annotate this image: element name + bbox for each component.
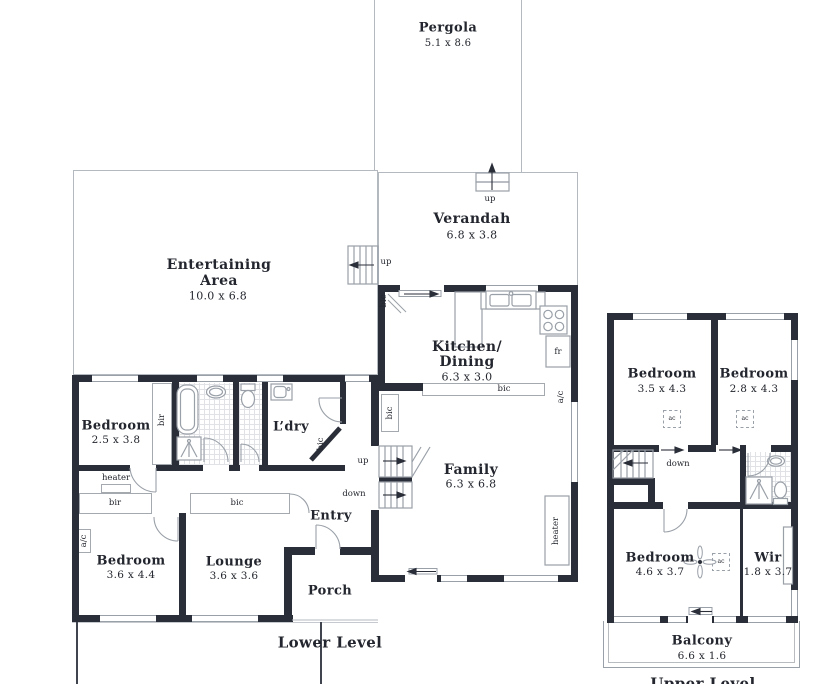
bic-label: bic [231,499,244,508]
ac-unit-label: ac [718,559,725,565]
room-label-pergola: Pergola [419,22,477,35]
room-dims-up-bedroom-right: 2.8 x 4.3 [730,384,779,395]
room-dims-bedroom-front: 2.5 x 3.8 [92,435,141,446]
room-label-laundry: L’dry [273,421,309,434]
upper-toilet-icon [774,482,788,505]
up-label: up [358,457,369,466]
room-label-verandah: Verandah [433,212,510,226]
room-label-entertaining-2: Area [200,274,238,288]
room-dims-family: 6.3 x 6.8 [446,479,497,490]
room-label-kitchen-dining: Kitchen/ [432,340,502,354]
heater-label: heater [102,474,130,483]
room-dims-balcony: 6.6 x 1.6 [678,651,727,662]
bir-label: bir [158,414,167,426]
room-dims-up-bedroom-left: 3.5 x 4.3 [638,384,687,395]
ac-unit-label: ac [669,416,676,422]
sink-icon [486,291,536,309]
toilet-icon [241,384,255,408]
room-label-entertaining: Entertaining [167,258,272,272]
level-label-lower: Lower Level [278,636,383,651]
down-label: down [666,460,689,469]
heater-label: heater [552,517,561,545]
room-label-up-bedroom-right: Bedroom [719,368,788,381]
room-dims-lounge: 3.6 x 3.6 [210,571,259,582]
bathtub-icon [177,385,198,434]
ac-label: a/c [557,391,566,404]
fixtures-overlay [0,0,828,684]
room-label-porch: Porch [308,585,352,598]
room-label-bedroom-front: Bedroom [81,420,150,433]
basin-icon [207,386,226,398]
bic-label: bic [498,385,511,394]
upper-stairs-icon [613,450,653,478]
room-label-entry: Entry [310,510,352,523]
room-label-lounge: Lounge [206,556,262,569]
up-label: up [381,258,392,267]
room-dims-pergola: 5.1 x 8.6 [425,39,472,49]
room-label-kitchen-dining-2: Dining [439,355,494,369]
room-label-bedroom-rear: Bedroom [96,555,165,568]
ac-unit-icon [664,411,754,571]
bic-label: bic [317,438,326,451]
room-label-family: Family [444,463,498,477]
laundry-trough-icon [271,384,292,400]
bic-label: bic [386,407,395,420]
room-dims-entertaining: 10.0 x 6.8 [189,291,247,302]
bir-label: bir [109,499,121,508]
up-label: up [485,195,496,204]
room-dims-kitchen-dining: 6.3 x 3.0 [442,372,493,383]
fridge-label: fr [554,348,561,357]
room-label-balcony: Balcony [672,635,733,648]
room-dims-bedroom-rear: 3.6 x 4.4 [107,570,156,581]
room-dims-up-bedroom-main: 4.6 x 3.7 [636,567,685,578]
room-dims-verandah: 6.8 x 3.8 [447,230,498,241]
ac-unit-label: ac [742,416,749,422]
room-label-wir: Wir [754,552,781,565]
room-label-up-bedroom-main: Bedroom [625,552,694,565]
shower-icon [177,437,201,460]
floor-plan: Pergola 5.1 x 8.6 Verandah 6.8 x 3.8 Ent… [0,0,828,684]
down-label: down [342,490,365,499]
room-label-up-bedroom-left: Bedroom [627,368,696,381]
ac-label: a/c [80,535,89,548]
upper-shower-icon [746,477,772,504]
stove-icon [540,306,567,334]
level-label-upper: Upper Level [650,677,755,684]
stairs-icon [379,446,430,508]
room-dims-wir: 1.8 x 3.7 [744,567,793,578]
bic-label: bic [380,295,389,308]
